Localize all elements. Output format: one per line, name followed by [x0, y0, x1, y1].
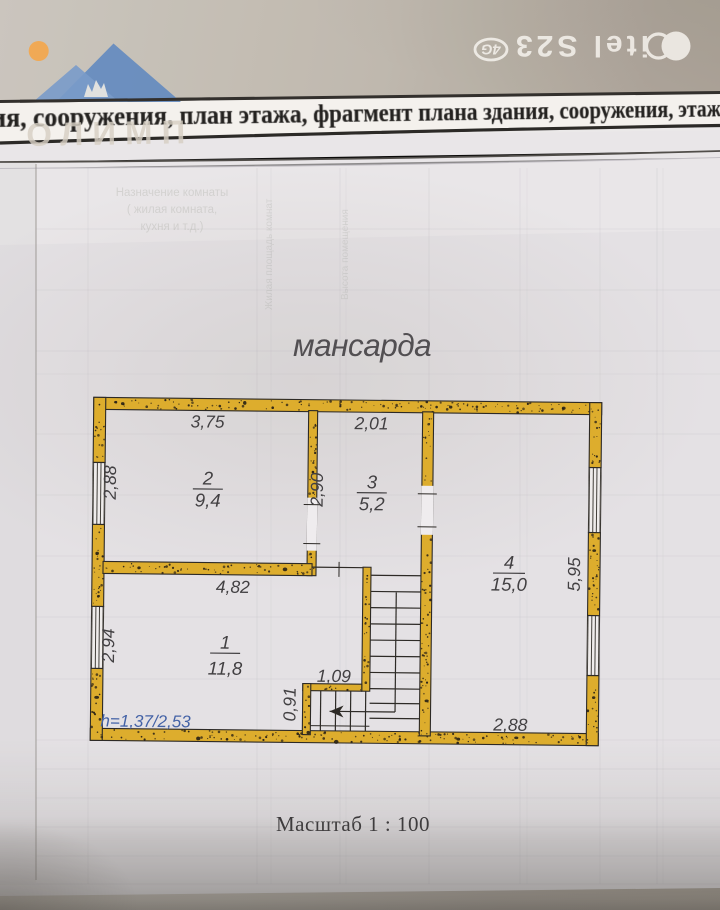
svg-text:2,88: 2,88: [100, 465, 120, 501]
svg-text:2,94: 2,94: [98, 628, 118, 664]
svg-text:0,91: 0,91: [279, 687, 299, 721]
svg-text:1,09: 1,09: [317, 666, 352, 686]
svg-text:5,95: 5,95: [564, 557, 584, 592]
svg-text:15,0: 15,0: [491, 574, 528, 595]
svg-text:2,01: 2,01: [353, 413, 388, 433]
svg-text:2,88: 2,88: [492, 715, 528, 735]
svg-text:3: 3: [367, 471, 378, 492]
svg-text:h=1,37/2,53: h=1,37/2,53: [100, 711, 191, 731]
svg-text:1: 1: [220, 632, 231, 653]
svg-text:11,8: 11,8: [208, 658, 244, 679]
svg-text:9,4: 9,4: [195, 489, 221, 510]
svg-text:2,90: 2,90: [307, 472, 327, 508]
svg-text:4: 4: [504, 552, 515, 573]
svg-text:5,2: 5,2: [359, 493, 386, 514]
svg-text:2: 2: [202, 467, 214, 488]
svg-text:3,75: 3,75: [190, 411, 225, 431]
svg-text:4,82: 4,82: [216, 577, 251, 597]
